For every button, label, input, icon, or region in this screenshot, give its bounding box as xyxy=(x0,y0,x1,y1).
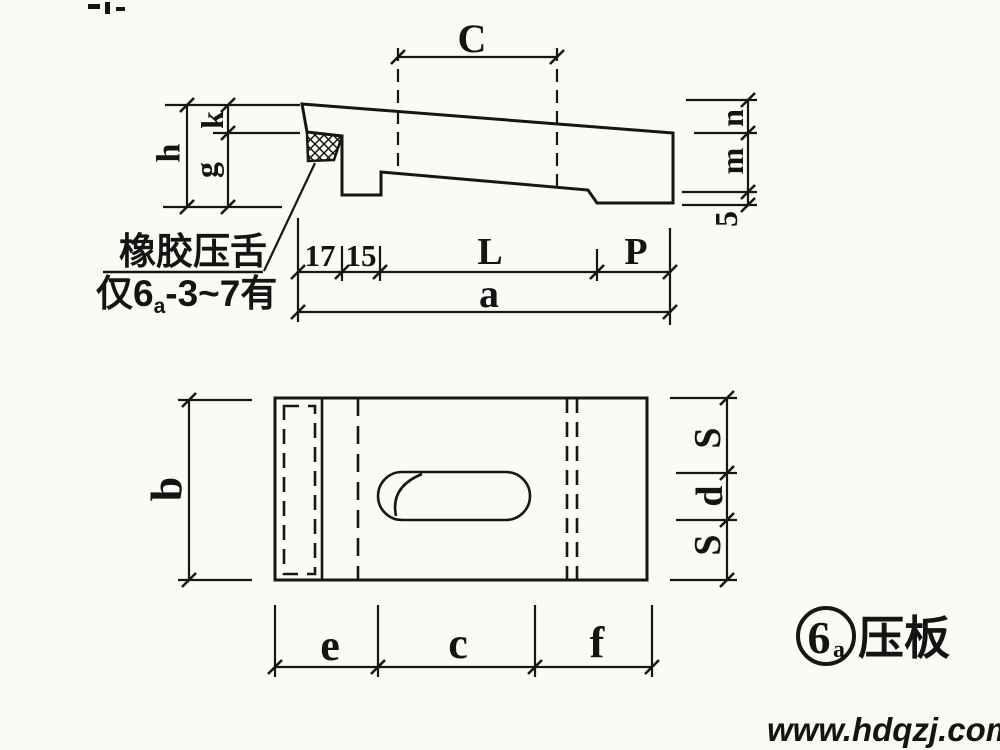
dim-a-label: a xyxy=(479,271,499,316)
dim-s-top-label: S xyxy=(687,427,729,448)
dim-k-label: k xyxy=(194,111,230,129)
callout-line2-suffix: -3~7有 xyxy=(165,273,277,314)
paper-background xyxy=(0,0,1000,750)
dim-l-label: L xyxy=(477,231,502,273)
dim-15-label: 15 xyxy=(346,238,377,273)
pressure-plate-drawing: C h k g n xyxy=(0,0,1000,750)
figure-number-subscript: a xyxy=(833,637,845,663)
callout-line2-subscript: a xyxy=(154,295,166,318)
figure-label: 6 a 压板 xyxy=(798,608,950,664)
dim-b-label: b xyxy=(143,477,192,501)
dim-e-label: e xyxy=(320,621,340,670)
dim-g-label: g xyxy=(188,162,224,178)
dim-p-label: P xyxy=(624,231,647,273)
callout-line1: 橡胶压舌 xyxy=(119,231,267,272)
dim-m-label: m xyxy=(714,147,750,174)
dim-c-label: C xyxy=(458,16,487,61)
dim-17-label: 17 xyxy=(305,238,336,273)
dim-c2-label: c xyxy=(448,619,468,668)
figure-name: 压板 xyxy=(858,612,950,664)
rubber-tongue-callout: 橡胶压舌 仅6a-3~7有 xyxy=(96,231,277,318)
dim-f-label: f xyxy=(590,618,606,667)
dim-d-label: d xyxy=(689,485,731,506)
watermark-url: www.hdqzj.com xyxy=(767,711,1000,748)
callout-line2-prefix: 仅6 xyxy=(96,273,154,314)
figure-number: 6 xyxy=(808,612,831,663)
callout-line2: 仅6a-3~7有 xyxy=(96,273,277,318)
dim-h-label: h xyxy=(151,143,188,162)
drawing-page: C h k g n xyxy=(0,0,1000,750)
dim-n-label: n xyxy=(714,109,750,127)
dim-5-label: 5 xyxy=(708,211,744,227)
dim-s-bottom-label: S xyxy=(687,534,729,555)
